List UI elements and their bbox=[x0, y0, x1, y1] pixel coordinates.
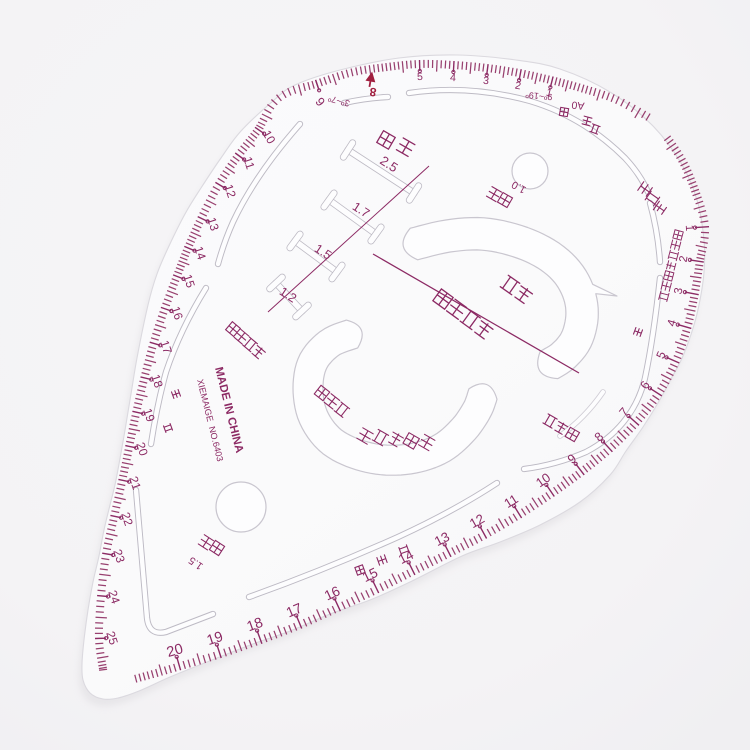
svg-text:5: 5 bbox=[417, 71, 423, 83]
svg-text:A0: A0 bbox=[571, 98, 585, 111]
svg-text:1: 1 bbox=[683, 224, 695, 231]
svg-text:4: 4 bbox=[450, 72, 457, 84]
